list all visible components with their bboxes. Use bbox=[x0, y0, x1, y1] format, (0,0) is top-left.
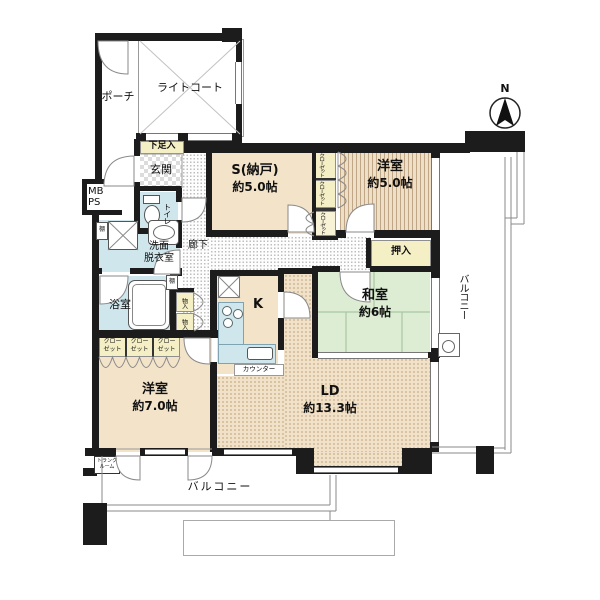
closet-row-label-2b: ゼット bbox=[126, 347, 153, 354]
counter-label: カウンター bbox=[234, 366, 284, 373]
closet-vertical-label-1: クローゼット bbox=[317, 153, 324, 174]
storage-room-label-1: S(納戸) bbox=[215, 164, 295, 178]
meter-box-label-1: MB bbox=[88, 186, 116, 197]
porch-label: ポーチ bbox=[96, 91, 140, 103]
kitchen-label: K bbox=[248, 298, 268, 312]
storage-small-label-2: 物入 bbox=[180, 316, 187, 331]
light-court-label: ライトコート bbox=[150, 82, 230, 94]
compass-north-label: N bbox=[497, 83, 513, 95]
storage-room-label-2: 約5.0帖 bbox=[215, 181, 295, 194]
shoe-cabinet-label: 下足入 bbox=[140, 142, 184, 152]
balcony-bottom-label: バルコニー bbox=[160, 481, 280, 493]
entrance-label: 玄関 bbox=[140, 164, 182, 176]
compass-icon bbox=[490, 98, 520, 128]
living-dining-label-2: 約13.3帖 bbox=[280, 402, 380, 415]
shelf-a-label: 棚 bbox=[96, 227, 108, 234]
japanese-room-label-2: 約6帖 bbox=[330, 306, 420, 319]
living-dining-label-1: LD bbox=[280, 385, 380, 399]
closet-row-label-2a: クロー bbox=[126, 339, 153, 346]
balcony-right-label: バルコニー bbox=[457, 264, 468, 328]
closet-row-label-1a: クロー bbox=[99, 339, 126, 346]
meter-box-label-2: PS bbox=[88, 197, 116, 208]
japanese-room-label-1: 和室 bbox=[330, 289, 420, 303]
western-room-5-label-1: 洋室 bbox=[350, 160, 430, 174]
toilet-label: トイレ bbox=[162, 196, 171, 230]
shelf-b-label: 棚 bbox=[166, 279, 178, 286]
western-room-7-label-2: 約7.0帖 bbox=[105, 400, 205, 413]
washroom-label-2: 脱衣室 bbox=[136, 253, 182, 264]
western-room-5-label-2: 約5.0帖 bbox=[350, 177, 430, 190]
oshiire-label: 押入 bbox=[372, 246, 430, 257]
hallway-label: 廊下 bbox=[183, 240, 213, 251]
closet-vertical-label-2: クローゼット bbox=[317, 181, 324, 202]
bathroom-label: 浴室 bbox=[98, 299, 142, 311]
washroom-label-1: 洗面 bbox=[136, 241, 182, 252]
floor-plan: ポーチ ライトコート 下足入 玄関 MB PS トイレ 棚 棚 洗面 脱衣室 浴… bbox=[0, 0, 600, 600]
western-room-7-label-1: 洋室 bbox=[105, 383, 205, 397]
closet-row-label-3a: クロー bbox=[153, 339, 180, 346]
closet-vertical-label-3: クローゼット bbox=[318, 212, 325, 230]
closet-row-label-1b: ゼット bbox=[99, 347, 126, 354]
storage-small-label-1: 物入 bbox=[180, 295, 187, 310]
closet-row-label-3b: ゼット bbox=[153, 347, 180, 354]
trunk-room-label-2: ルーム bbox=[95, 465, 119, 471]
